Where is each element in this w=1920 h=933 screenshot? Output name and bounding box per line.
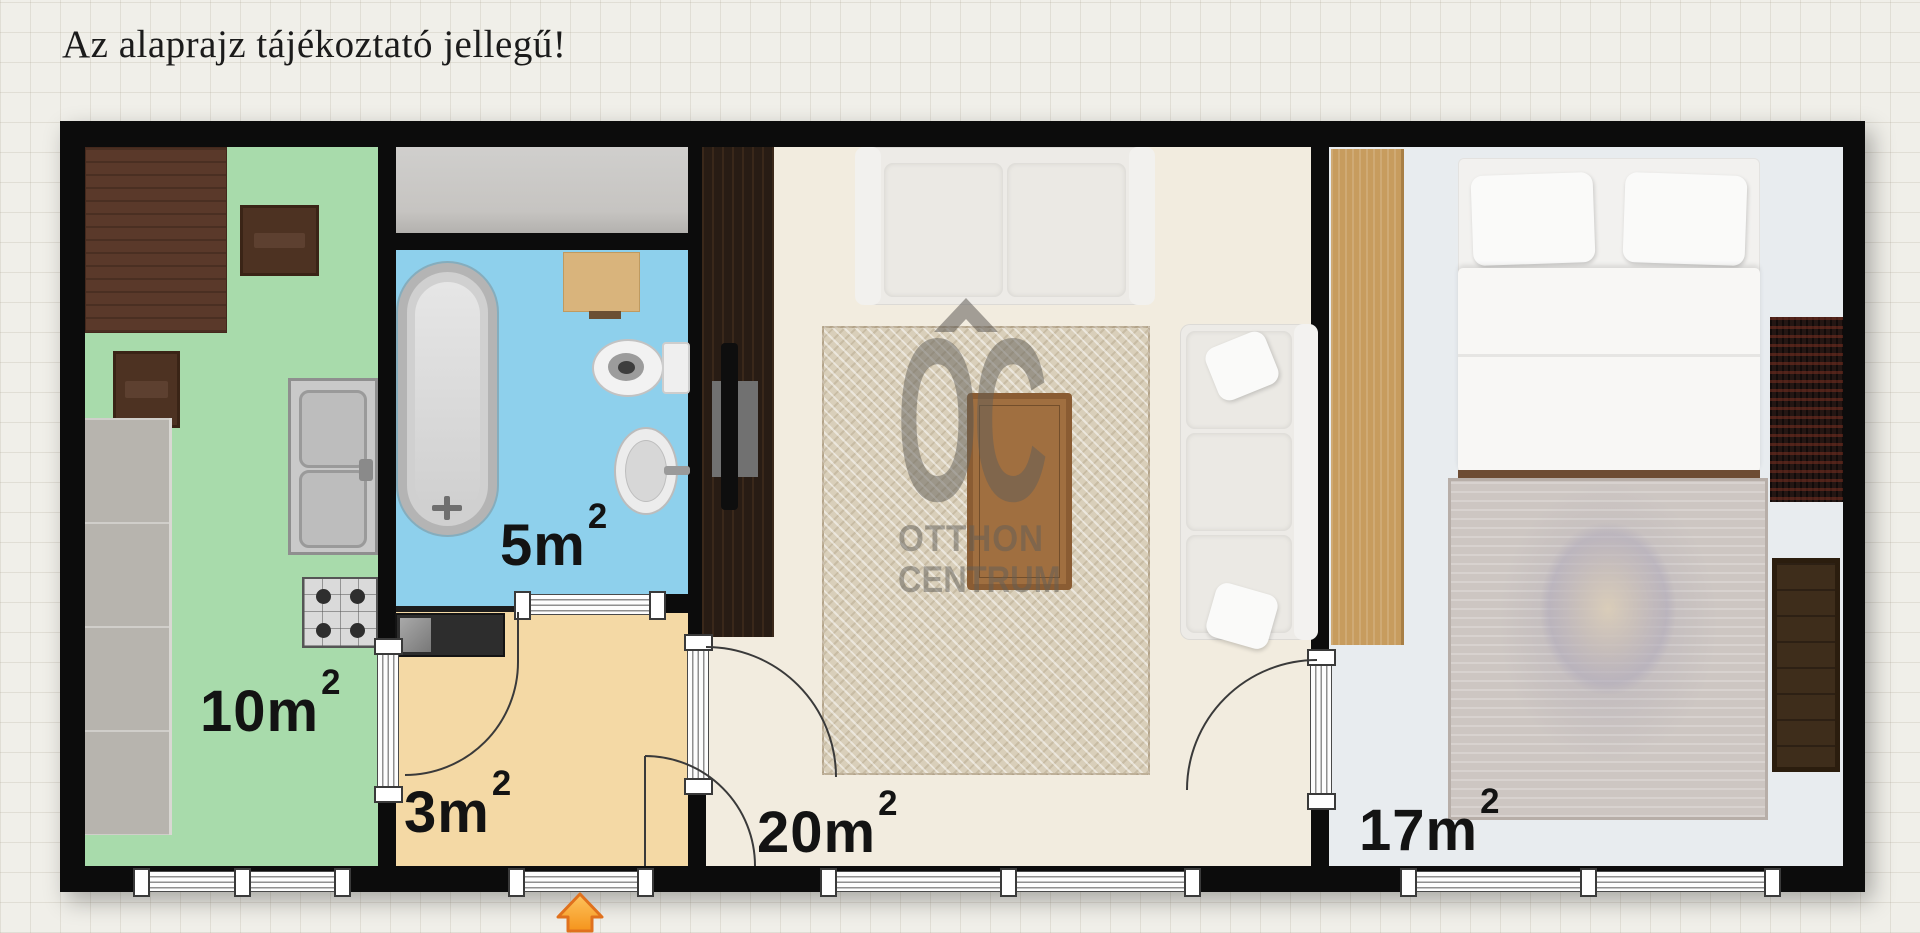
sink-basin: [299, 470, 367, 548]
sofa-three-seater: [1180, 324, 1318, 640]
area-label-hallway: 3m2: [404, 779, 512, 846]
area-label-bedroom: 17m2: [1359, 797, 1500, 864]
door-post: [1307, 649, 1336, 666]
tv-screen: [721, 343, 738, 510]
window-post: [1580, 868, 1597, 897]
area-value: 3m: [404, 780, 490, 845]
door-post: [684, 634, 713, 651]
bed-footboard: [1458, 470, 1760, 478]
glazed-door-kitchen-hallway: [377, 647, 399, 792]
kitchen-chair: [113, 351, 180, 428]
stove-burner: [316, 589, 331, 604]
door-post: [374, 638, 403, 655]
bedroom-wardrobe: [1331, 149, 1404, 645]
bed-duvet: [1458, 268, 1760, 472]
kitchen-counter: [85, 418, 172, 835]
kitchen-table: [85, 147, 227, 333]
window-post: [234, 868, 251, 897]
wall-kitchen-bathroom-upper: [378, 147, 396, 641]
window-post: [820, 868, 837, 897]
area-value: 17m: [1359, 798, 1478, 863]
kitchen-sink: [288, 378, 378, 555]
door-post: [514, 591, 531, 620]
bathroom-side-table: [563, 252, 640, 312]
window-post: [1184, 868, 1201, 897]
door-post: [649, 591, 666, 620]
area-label-living-room: 20m2: [757, 799, 898, 866]
kitchen-chair: [240, 205, 319, 276]
window-post: [1400, 868, 1417, 897]
floorplan-page: Az alaprajz tájékoztató jellegű!: [0, 0, 1920, 933]
sink-basin: [299, 390, 367, 468]
window-post: [508, 868, 525, 897]
sofa-two-seater: [855, 147, 1155, 305]
sofa-armrest: [1129, 147, 1155, 305]
bathtub: [398, 263, 497, 535]
disclaimer-text: Az alaprajz tájékoztató jellegű!: [62, 22, 566, 67]
door-post: [1307, 793, 1336, 810]
coffee-table: [967, 393, 1072, 590]
stove-burner: [316, 623, 331, 638]
area-sup: 2: [321, 663, 341, 702]
sofa-cushion: [1186, 433, 1292, 531]
area-label-kitchen: 10m2: [200, 678, 341, 745]
faucet-icon: [432, 505, 462, 511]
wall-closet-bathroom: [396, 233, 688, 250]
wall-hallway-living-lower: [688, 790, 706, 866]
toilet: [592, 339, 664, 397]
area-sup: 2: [1480, 782, 1500, 821]
sofa-armrest: [855, 147, 881, 305]
stove-burner: [350, 623, 365, 638]
door-post: [374, 786, 403, 803]
bathtub-rim: [407, 272, 488, 526]
closet-shaft-floor: [396, 147, 688, 233]
area-sup: 2: [588, 497, 608, 536]
door-living-bedroom: [1310, 658, 1332, 799]
wall-living-bedroom-lower: [1311, 805, 1329, 866]
bedroom-bench: [1772, 558, 1840, 772]
bed-pillow: [1470, 172, 1595, 266]
area-value: 5m: [500, 513, 586, 578]
window-post: [1764, 868, 1781, 897]
area-sup: 2: [492, 764, 512, 803]
washing-machine: [395, 613, 505, 657]
door-post: [684, 778, 713, 795]
glazed-door-hallway-living: [687, 643, 709, 784]
area-value: 20m: [757, 800, 876, 865]
bed-pillow: [1622, 172, 1747, 266]
entrance-arrow-icon: [558, 894, 602, 931]
entrance-door-glazed: [508, 871, 652, 892]
window-post: [1000, 868, 1017, 897]
wall-kitchen-hallway-lower: [378, 798, 396, 866]
faucet-icon: [359, 459, 373, 481]
sofa-backrest: [1294, 324, 1318, 640]
area-value: 10m: [200, 679, 319, 744]
window-post: [133, 868, 150, 897]
area-sup: 2: [878, 784, 898, 823]
window-post: [637, 868, 654, 897]
bedroom-rug: [1448, 478, 1768, 820]
sofa-cushion: [1007, 163, 1126, 297]
gas-stove: [302, 577, 378, 648]
area-label-bathroom: 5m2: [500, 512, 608, 579]
stove-burner: [350, 589, 365, 604]
glazed-door-bathroom: [522, 594, 660, 615]
sofa-cushion: [884, 163, 1003, 297]
dark-runner-rug: [1770, 317, 1843, 502]
wall-bathroom-hallway-thin: [396, 606, 526, 612]
window-post: [334, 868, 351, 897]
bathtub-basin: [415, 282, 480, 516]
faucet-icon: [664, 466, 690, 475]
toilet-tank: [662, 342, 690, 394]
